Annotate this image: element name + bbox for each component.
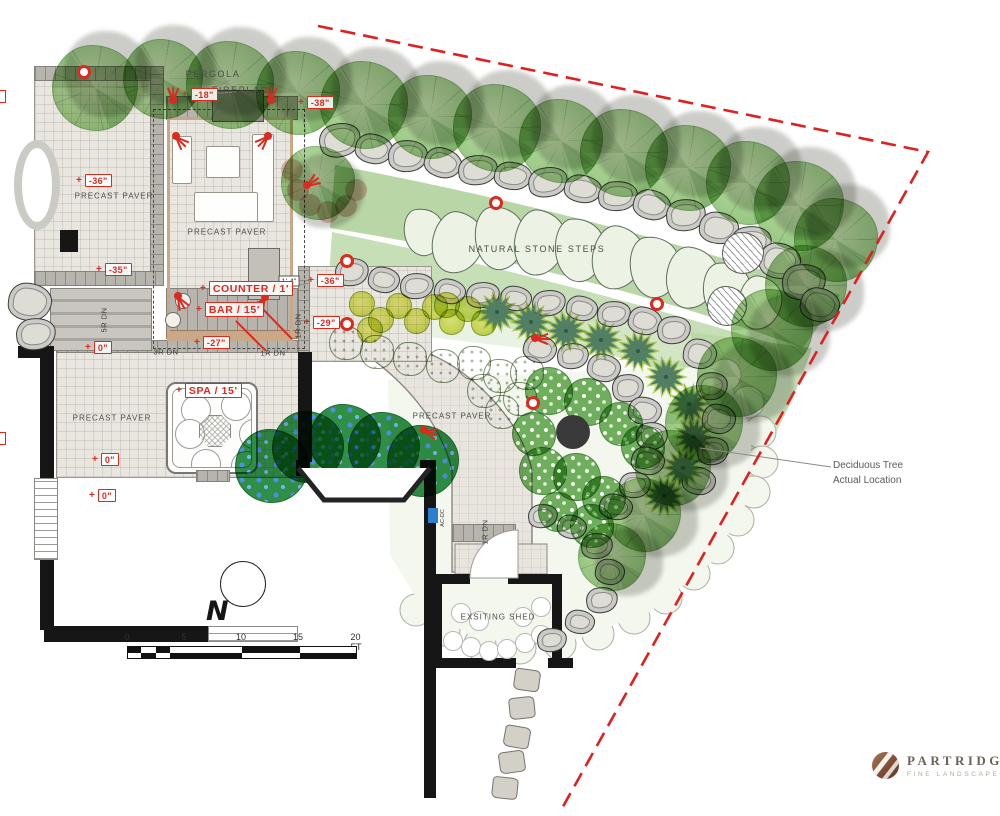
brand-logo: PARTRIDGE FINE LANDSCAPES — [872, 752, 1000, 779]
plan-label: 1R DN — [294, 313, 303, 338]
scale-tick-label: 15 — [293, 632, 303, 642]
plan-label: AC-DC — [440, 509, 446, 526]
scale-tick-label: 10 — [236, 632, 246, 642]
plan-label: PRECAST PAVER — [75, 192, 154, 201]
plan-label: PRECAST PAVER — [73, 414, 152, 423]
plan-label: PRECAST PAVER — [188, 228, 267, 237]
uplight-target-icon — [340, 317, 354, 331]
elevation-callout: +-27" — [194, 336, 230, 349]
scale-bar-block — [170, 653, 184, 660]
plan-label: FIREPLACE — [212, 85, 276, 95]
scale-tick-label: 5 — [181, 632, 186, 642]
partridge-logo-icon — [872, 752, 899, 779]
elevation-callout: +0" — [92, 453, 119, 466]
scale-bar-block — [141, 653, 155, 660]
scale-bar-block — [127, 646, 141, 653]
elevation-callout: +-18" — [182, 88, 218, 101]
annotation-layer: N 05101520 FT Deciduous TreeActual Locat… — [0, 0, 1000, 816]
scale-bar-block — [185, 653, 243, 660]
uplight-target-icon — [77, 65, 91, 79]
plan-label: 3R DN — [153, 348, 178, 357]
scale-tick-label: 0 — [124, 632, 129, 642]
plan-label: PERGOLA — [186, 69, 241, 79]
edge-dimension-marker — [0, 90, 6, 103]
elevation-callout: +-36" — [308, 274, 344, 287]
uplight-target-icon — [650, 297, 664, 311]
elevation-callout: +-38" — [298, 96, 334, 109]
scale-bar-block — [242, 646, 300, 653]
elevation-callout: +0" — [89, 489, 116, 502]
north-label: N — [206, 596, 229, 627]
elevation-callout: +-35" — [96, 263, 132, 276]
scale-bar-block — [156, 646, 170, 653]
plan-label: PRECAST PAVER — [413, 412, 492, 421]
callout-arrow — [235, 320, 266, 351]
elevation-callout: +BAR / 15' — [196, 302, 264, 317]
uplight-target-icon — [489, 196, 503, 210]
uplight-target-icon — [526, 396, 540, 410]
deciduous-tree-note: Deciduous TreeActual Location — [833, 458, 903, 488]
plan-label: EXSITING SHED — [461, 613, 536, 622]
elevation-callout: +0" — [85, 341, 112, 354]
uplight-target-icon — [340, 254, 354, 268]
elevation-callout: +-36" — [76, 174, 112, 187]
plan-label: 5R DN — [100, 307, 109, 332]
brand-tagline: FINE LANDSCAPES — [907, 771, 1000, 778]
plan-label: NATURAL STONE STEPS — [469, 244, 606, 254]
elevation-callout: +COUNTER / 1' — [200, 281, 293, 296]
elevation-callout: +SPA / 15' — [176, 383, 242, 398]
edge-dimension-marker — [0, 432, 6, 445]
elevation-callout: +-29" — [304, 316, 340, 329]
brand-name: PARTRIDGE — [907, 753, 1000, 769]
scale-bar-block — [300, 653, 358, 660]
plan-label: 1R DN — [481, 519, 490, 544]
landscape-plan-canvas: N 05101520 FT Deciduous TreeActual Locat… — [0, 0, 1000, 816]
